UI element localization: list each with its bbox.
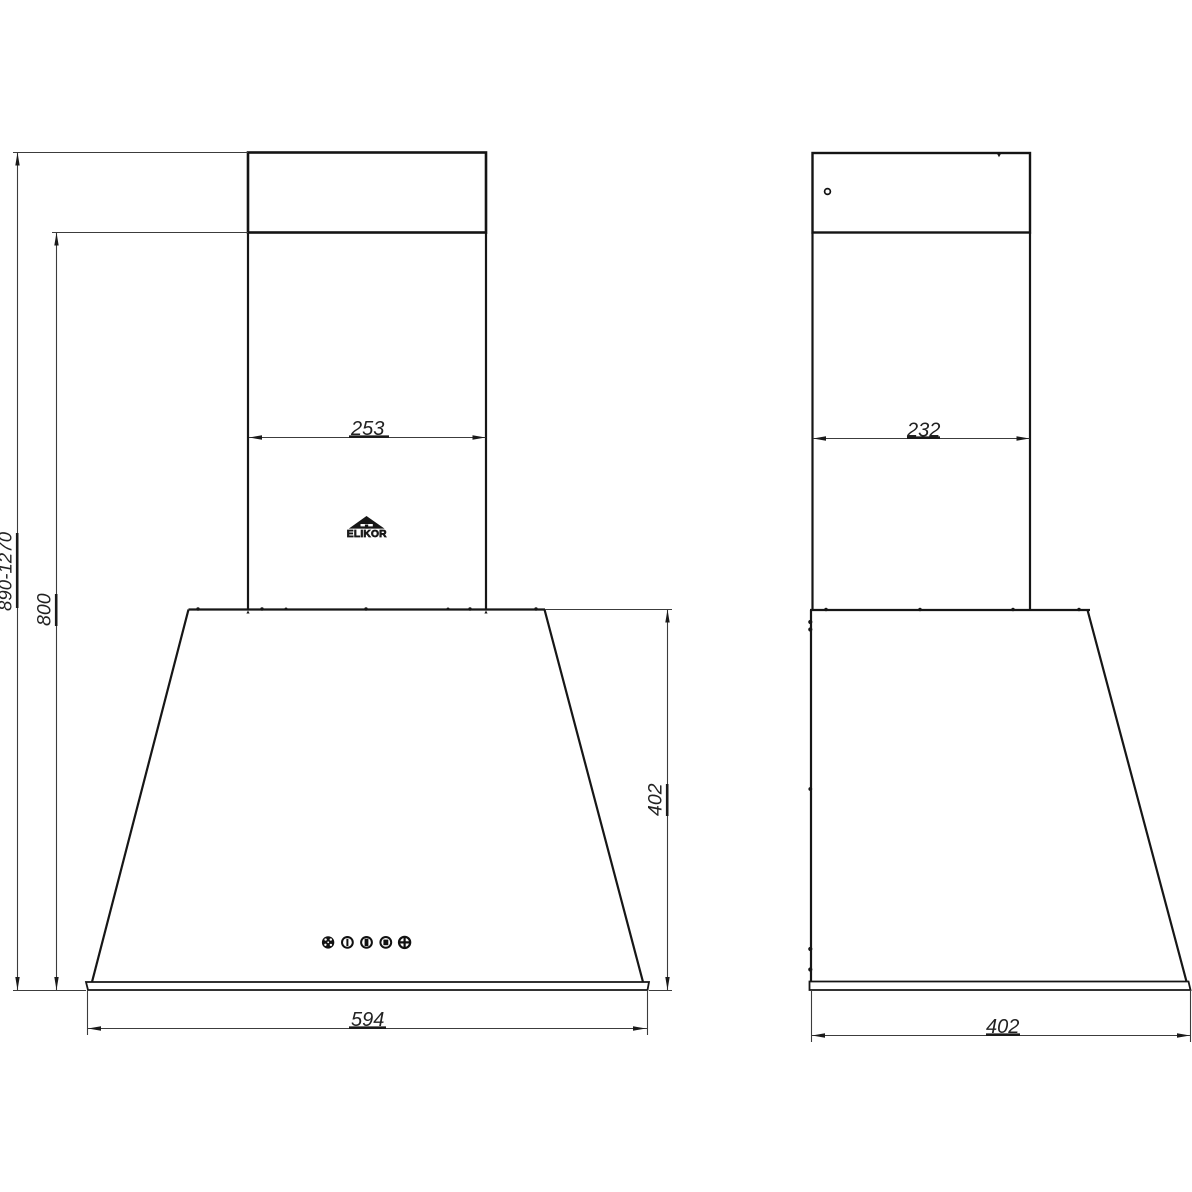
svg-text:800: 800 xyxy=(34,593,56,626)
svg-text:253: 253 xyxy=(350,418,384,440)
svg-text:232: 232 xyxy=(906,419,940,441)
svg-text:402: 402 xyxy=(645,783,667,816)
svg-text:890-1270: 890-1270 xyxy=(0,531,16,611)
svg-text:ELIKOR: ELIKOR xyxy=(347,529,388,540)
svg-text:402: 402 xyxy=(986,1016,1019,1038)
svg-text:594: 594 xyxy=(351,1009,384,1031)
